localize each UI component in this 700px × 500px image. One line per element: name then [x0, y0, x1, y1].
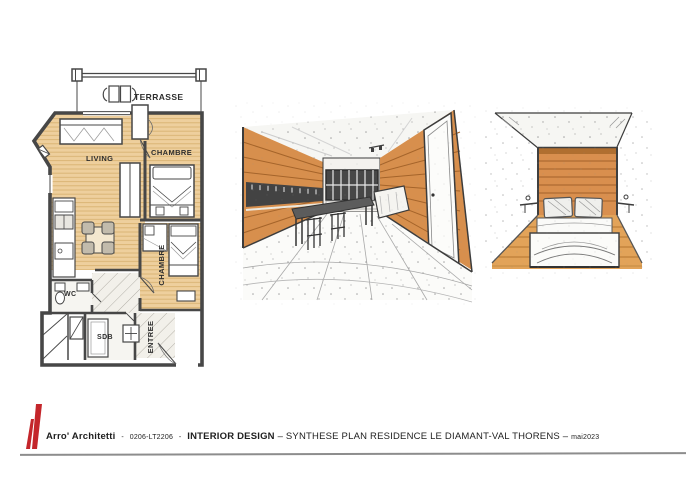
project-title: – SYNTHESE PLAN RESIDENCE LE DIAMANT-VAL… [278, 431, 569, 442]
architect-logo-icon [24, 403, 44, 449]
footer-divider [20, 452, 686, 455]
kitchen-counter [53, 198, 75, 277]
wardrobe [120, 163, 140, 217]
terrace-table-icon [103, 86, 136, 102]
label-sdb: SDB [97, 334, 113, 341]
label-chambre-1: CHAMBRE [151, 148, 192, 157]
scan-grain [482, 105, 652, 280]
sofa [60, 119, 122, 144]
label-living: LIVING [86, 154, 113, 163]
scan-grain [232, 100, 477, 305]
bedroom-perspective-sketch [482, 105, 652, 280]
left-window [48, 175, 53, 193]
label-wc: WC [64, 291, 76, 298]
living-perspective-sketch [232, 100, 477, 305]
project-code: 0206-LT2206 [130, 434, 173, 441]
label-chambre-2: CHAMBRE [157, 244, 166, 285]
firm-name: Arro' Architetti [46, 431, 116, 442]
dining-table [82, 222, 114, 254]
title-block: Arro' Architetti - 0206-LT2206 - INTERIO… [46, 431, 686, 442]
floor-plan: TERRASSE [30, 55, 220, 375]
label-terrasse: TERRASSE [134, 92, 184, 102]
bed-chambre1 [150, 165, 194, 217]
discipline: INTERIOR DESIGN [187, 431, 274, 442]
separator: - [179, 434, 182, 441]
separator: - [121, 434, 124, 441]
label-entree: ENTREE [146, 321, 155, 354]
top-window [83, 110, 130, 116]
date: mai2023 [571, 434, 599, 441]
scanned-sheet: TERRASSE [0, 0, 700, 500]
